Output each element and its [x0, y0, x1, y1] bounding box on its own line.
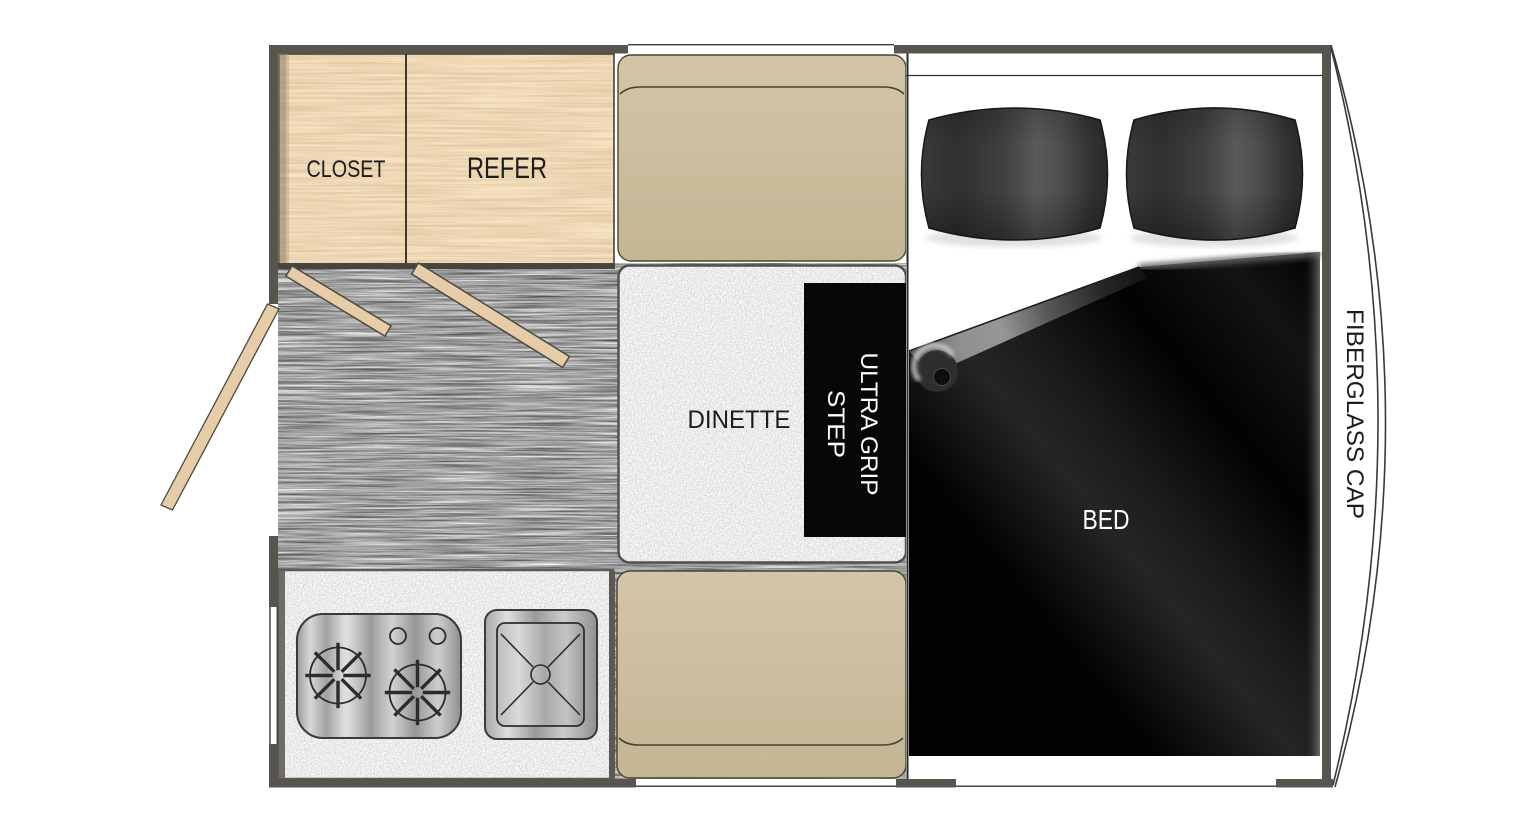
svg-text:FIBERGLASS CAP: FIBERGLASS CAP — [1341, 309, 1368, 519]
svg-text:STEP: STEP — [822, 390, 849, 458]
svg-text:CLOSET: CLOSET — [307, 156, 386, 183]
svg-text:REFER: REFER — [467, 152, 547, 185]
svg-text:DINETTE: DINETTE — [688, 406, 791, 434]
svg-text:BED: BED — [1083, 504, 1130, 535]
svg-text:ULTRA GRIP: ULTRA GRIP — [855, 353, 882, 496]
